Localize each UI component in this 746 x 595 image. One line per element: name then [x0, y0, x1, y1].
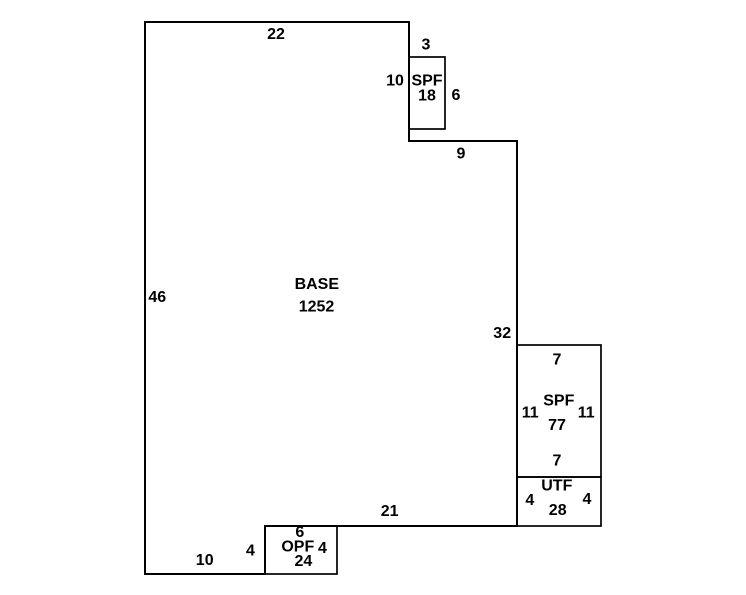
svg-text:28: 28	[549, 502, 567, 519]
svg-text:24: 24	[295, 553, 313, 570]
svg-text:7: 7	[553, 453, 562, 470]
svg-text:1252: 1252	[299, 298, 335, 315]
svg-text:11: 11	[578, 405, 595, 422]
svg-text:3: 3	[422, 37, 431, 54]
svg-text:11: 11	[522, 405, 539, 422]
svg-text:4: 4	[525, 492, 534, 509]
svg-text:10: 10	[196, 552, 214, 569]
svg-text:22: 22	[267, 26, 285, 43]
svg-text:4: 4	[582, 491, 591, 508]
svg-text:21: 21	[381, 503, 399, 520]
svg-text:32: 32	[493, 325, 511, 342]
svg-text:9: 9	[457, 146, 466, 163]
svg-text:10: 10	[386, 73, 404, 90]
svg-text:6: 6	[452, 87, 461, 104]
svg-text:77: 77	[548, 417, 566, 434]
svg-text:BASE: BASE	[295, 276, 340, 293]
svg-text:UTF: UTF	[541, 478, 572, 495]
svg-text:SPF: SPF	[543, 393, 574, 410]
svg-text:4: 4	[318, 540, 327, 557]
svg-text:7: 7	[553, 352, 562, 369]
svg-text:46: 46	[148, 289, 166, 306]
svg-text:4: 4	[246, 543, 255, 560]
svg-text:18: 18	[418, 88, 436, 105]
